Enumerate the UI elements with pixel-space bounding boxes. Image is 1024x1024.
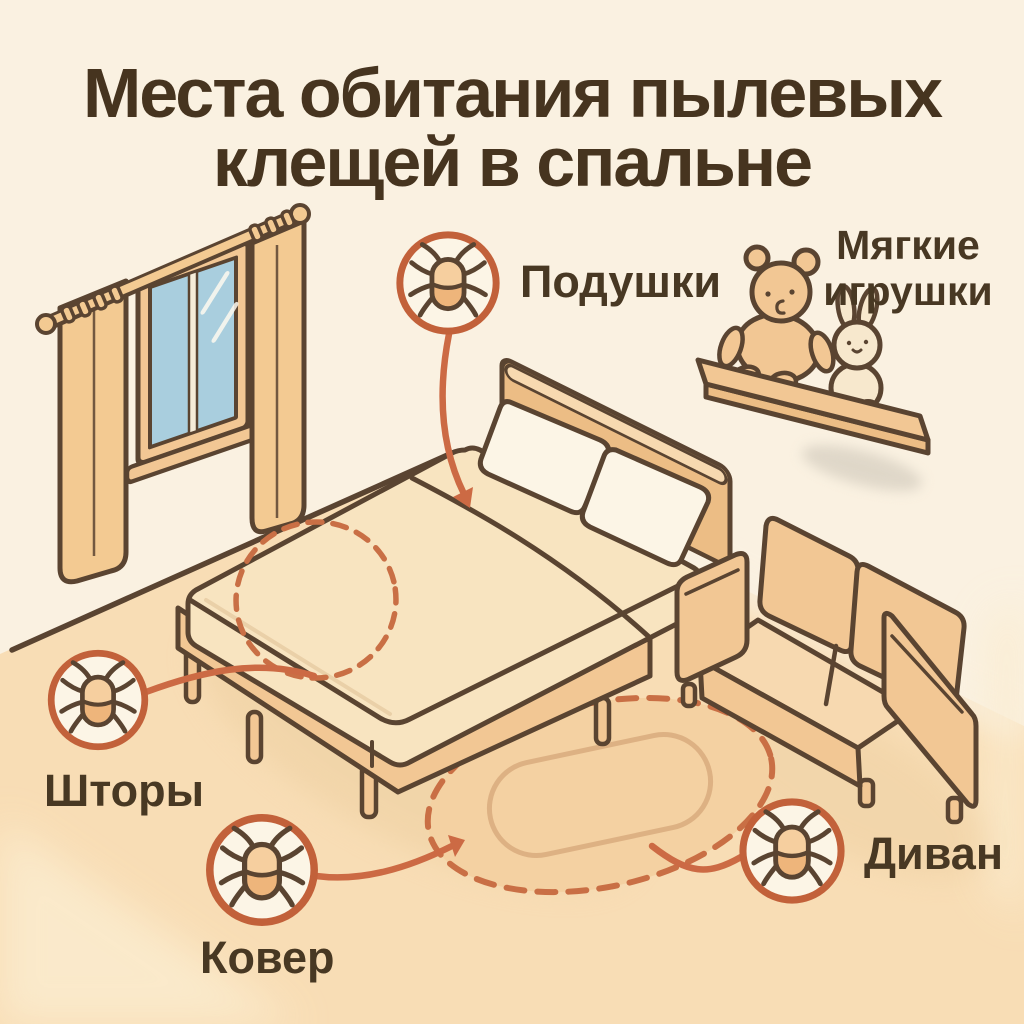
window-mullion xyxy=(189,271,197,434)
mite-badge-sofa xyxy=(743,802,841,900)
dust-mite-icon xyxy=(743,802,841,900)
page-title-line2: клещей в спальне xyxy=(213,123,811,201)
curtain-right xyxy=(252,221,304,532)
label-sofa: Диван xyxy=(864,828,1003,879)
label-soft-toys-line2: игрушки xyxy=(823,268,993,314)
label-carpet: Ковер xyxy=(200,932,335,983)
scene-canvas: Подушки Мягкие игрушки Шторы Ковер Диван… xyxy=(0,0,1024,1024)
page-title-line1: Места обитания пылевых xyxy=(83,54,943,132)
mite-badge-pillows xyxy=(400,235,496,331)
dust-mite-icon xyxy=(51,653,145,747)
label-pillows: Подушки xyxy=(520,256,721,307)
label-curtains: Шторы xyxy=(44,765,204,816)
label-soft-toys-line1: Мягкие xyxy=(836,222,980,268)
dust-mite-icon xyxy=(210,818,314,922)
curtain-left xyxy=(60,281,126,582)
dust-mite-icon xyxy=(400,235,496,331)
mite-badge-curtains xyxy=(51,653,145,747)
mite-badge-carpet xyxy=(210,818,314,922)
infographic-dust-mites-bedroom: Подушки Мягкие игрушки Шторы Ковер Диван… xyxy=(0,0,1024,1024)
